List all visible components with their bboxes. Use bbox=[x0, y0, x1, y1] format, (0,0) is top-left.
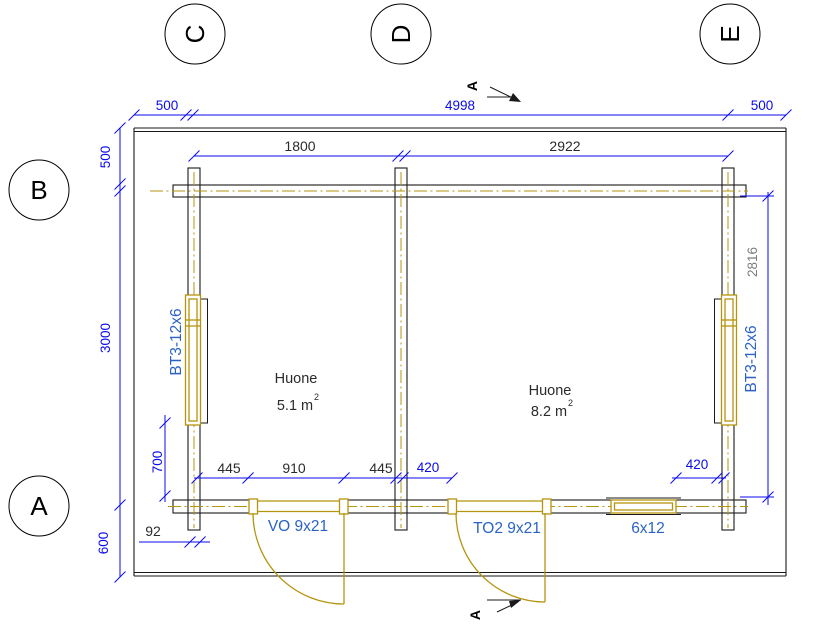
window-left-frame bbox=[186, 295, 201, 425]
floor-plan-canvas: C D E B A bbox=[0, 0, 816, 634]
grid-bubble-a: A bbox=[9, 476, 69, 536]
grid-bubble-c: C bbox=[165, 4, 225, 64]
grid-label-a: A bbox=[30, 491, 48, 521]
dim-window-offset: 420 bbox=[686, 457, 709, 472]
section-arrow-top bbox=[509, 93, 521, 102]
door-vo-label: VO 9x21 bbox=[268, 518, 328, 535]
section-label-bottom: A bbox=[467, 610, 483, 620]
section-label-top: A bbox=[464, 81, 480, 91]
grid-label-e: E bbox=[715, 25, 745, 42]
door-to2-jamb-right bbox=[543, 499, 552, 514]
window-6x12-frame bbox=[611, 500, 676, 513]
grid-bubbles: C D E B A bbox=[9, 4, 760, 536]
room2-area: 8.2 m bbox=[531, 404, 567, 420]
room1-area: 5.1 m bbox=[277, 398, 313, 414]
door-vo bbox=[249, 499, 348, 604]
door-to2 bbox=[448, 499, 551, 602]
window-left-reveal bbox=[201, 299, 208, 423]
dim-window-sill: 700 bbox=[150, 451, 165, 474]
window-left bbox=[186, 295, 208, 425]
window-right-reveal bbox=[715, 299, 722, 423]
dim-wall-thickness: 92 bbox=[145, 523, 161, 539]
window-right bbox=[715, 295, 737, 425]
window-right-frame bbox=[722, 295, 737, 425]
dim-chain-left: 445 bbox=[217, 460, 241, 476]
window-6x12-label: 6x12 bbox=[631, 520, 665, 537]
room1-area-sup: 2 bbox=[314, 392, 319, 402]
window-6x12 bbox=[606, 498, 681, 515]
walls bbox=[173, 168, 746, 530]
room2-name: Huone bbox=[529, 383, 572, 399]
dim-room2-width: 2922 bbox=[549, 138, 580, 154]
dim-top-right: 500 bbox=[751, 98, 774, 113]
door-vo-jamb-left bbox=[249, 499, 258, 514]
grid-label-b: B bbox=[30, 175, 47, 205]
dim-room1-width: 1800 bbox=[284, 138, 315, 154]
door-vo-jamb-right bbox=[340, 499, 349, 514]
grid-bubble-e: E bbox=[700, 4, 760, 64]
window-right-label: BT3-12x6 bbox=[743, 325, 760, 392]
dim-right-inner-height: 2816 bbox=[745, 247, 760, 277]
dim-chain-mid: 910 bbox=[282, 460, 306, 476]
door-to2-label: TO2 9x21 bbox=[473, 520, 541, 537]
dim-left-top: 500 bbox=[98, 146, 113, 169]
grid-bubble-d: D bbox=[371, 4, 431, 64]
grid-bubble-b: B bbox=[9, 160, 69, 220]
room2-area-sup: 2 bbox=[568, 398, 573, 408]
door-to2-jamb-left bbox=[448, 499, 457, 514]
dim-chain-right: 445 bbox=[369, 460, 393, 476]
room-labels: Huone 5.1 m 2 Huone 8.2 m 2 bbox=[275, 371, 573, 420]
dim-left-bottom: 600 bbox=[96, 532, 111, 555]
dim-left-span: 3000 bbox=[98, 323, 113, 353]
grid-label-c: C bbox=[180, 25, 210, 44]
room1-name: Huone bbox=[275, 371, 318, 387]
section-arrow-bottom bbox=[509, 600, 521, 608]
dim-top-span: 4998 bbox=[445, 98, 475, 113]
dim-door2-offset: 420 bbox=[417, 460, 440, 475]
dim-top-left: 500 bbox=[156, 98, 179, 113]
section-marker-bottom: A bbox=[467, 600, 521, 620]
grid-label-d: D bbox=[386, 25, 416, 44]
window-left-label: BT3-12x6 bbox=[168, 308, 185, 375]
floor-plan-drawing: C D E B A bbox=[0, 0, 816, 634]
